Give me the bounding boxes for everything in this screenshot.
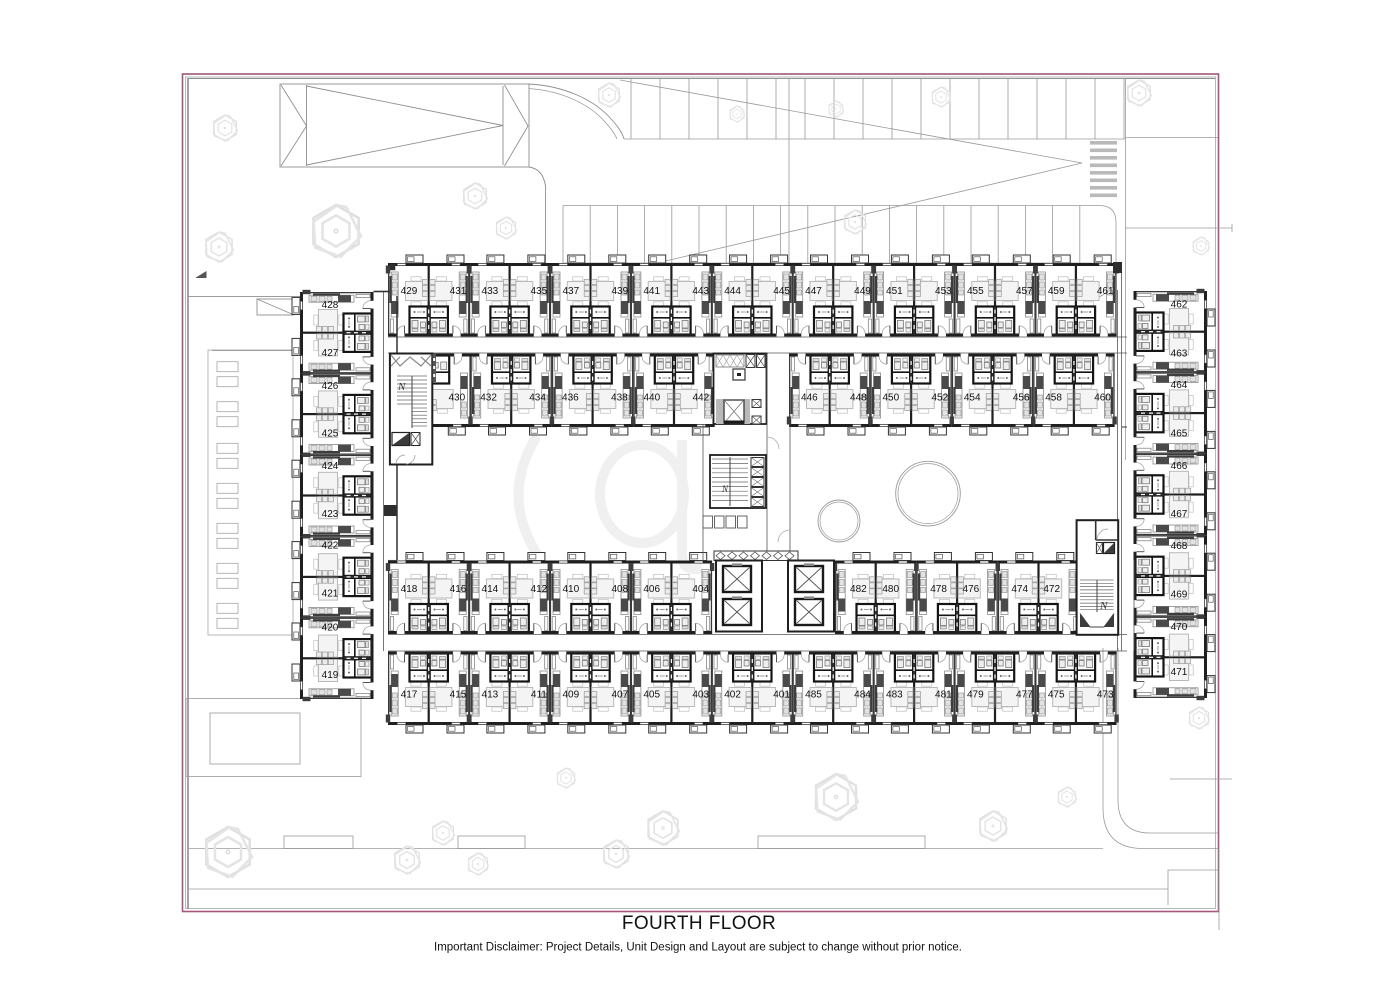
svg-text:413: 413 — [482, 690, 499, 701]
svg-text:471: 471 — [1171, 667, 1188, 678]
svg-text:443: 443 — [692, 286, 709, 297]
svg-text:439: 439 — [611, 286, 628, 297]
svg-text:422: 422 — [322, 540, 339, 551]
svg-text:470: 470 — [1171, 622, 1188, 633]
svg-text:436: 436 — [562, 392, 579, 403]
svg-text:442: 442 — [692, 392, 709, 403]
svg-text:468: 468 — [1171, 541, 1188, 552]
svg-text:446: 446 — [801, 392, 818, 403]
svg-text:455: 455 — [967, 286, 984, 297]
svg-text:425: 425 — [322, 428, 339, 439]
svg-text:465: 465 — [1171, 429, 1188, 440]
svg-text:430: 430 — [448, 392, 465, 403]
svg-text:445: 445 — [773, 286, 790, 297]
svg-text:426: 426 — [322, 381, 339, 392]
svg-text:403: 403 — [692, 690, 709, 701]
svg-text:485: 485 — [805, 690, 822, 701]
svg-text:408: 408 — [611, 584, 628, 595]
svg-text:474: 474 — [1011, 584, 1028, 595]
svg-text:464: 464 — [1171, 380, 1188, 391]
svg-text:405: 405 — [643, 690, 660, 701]
svg-text:402: 402 — [724, 690, 741, 701]
svg-text:N: N — [397, 381, 406, 393]
svg-text:444: 444 — [724, 286, 741, 297]
svg-text:418: 418 — [401, 584, 418, 595]
svg-text:410: 410 — [562, 584, 579, 595]
svg-text:434: 434 — [529, 392, 546, 403]
svg-text:482: 482 — [850, 584, 867, 595]
svg-text:432: 432 — [480, 392, 497, 403]
svg-text:467: 467 — [1171, 509, 1188, 520]
svg-text:406: 406 — [643, 584, 660, 595]
svg-text:463: 463 — [1171, 349, 1188, 360]
svg-text:449: 449 — [854, 286, 871, 297]
svg-text:411: 411 — [531, 690, 547, 701]
svg-text:412: 412 — [531, 584, 548, 595]
svg-text:Important Disclaimer: Project: Important Disclaimer: Project Details, U… — [434, 942, 962, 954]
svg-text:441: 441 — [643, 286, 660, 297]
svg-text:419: 419 — [322, 670, 339, 681]
svg-text:421: 421 — [322, 588, 339, 599]
svg-text:424: 424 — [322, 461, 339, 472]
svg-text:416: 416 — [450, 584, 467, 595]
svg-text:466: 466 — [1171, 461, 1188, 472]
svg-text:481: 481 — [935, 690, 952, 701]
svg-text:428: 428 — [322, 300, 339, 311]
svg-text:462: 462 — [1171, 300, 1188, 311]
svg-text:454: 454 — [964, 392, 981, 403]
svg-text:437: 437 — [562, 286, 579, 297]
svg-text:414: 414 — [482, 584, 499, 595]
svg-text:409: 409 — [562, 690, 579, 701]
svg-text:FOURTH FLOOR: FOURTH FLOOR — [622, 913, 776, 934]
svg-text:473: 473 — [1097, 690, 1114, 701]
svg-text:423: 423 — [322, 509, 339, 520]
svg-text:415: 415 — [450, 690, 467, 701]
svg-text:459: 459 — [1048, 286, 1065, 297]
svg-text:448: 448 — [850, 392, 867, 403]
svg-text:483: 483 — [886, 690, 903, 701]
svg-text:461: 461 — [1097, 286, 1114, 297]
svg-text:417: 417 — [401, 690, 418, 701]
svg-text:480: 480 — [882, 584, 899, 595]
svg-text:429: 429 — [401, 286, 418, 297]
svg-text:431: 431 — [450, 286, 467, 297]
svg-text:469: 469 — [1171, 590, 1188, 601]
svg-text:447: 447 — [805, 286, 822, 297]
svg-text:440: 440 — [643, 392, 660, 403]
svg-text:452: 452 — [931, 392, 948, 403]
svg-text:460: 460 — [1094, 392, 1111, 403]
svg-text:420: 420 — [322, 623, 339, 634]
svg-text:484: 484 — [854, 690, 871, 701]
svg-text:477: 477 — [1016, 690, 1033, 701]
svg-text:435: 435 — [531, 286, 548, 297]
svg-text:478: 478 — [930, 584, 947, 595]
svg-text:458: 458 — [1045, 392, 1062, 403]
svg-text:N: N — [1099, 600, 1108, 612]
svg-text:479: 479 — [967, 690, 984, 701]
svg-text:427: 427 — [322, 348, 339, 359]
svg-text:476: 476 — [963, 584, 980, 595]
svg-text:456: 456 — [1013, 392, 1030, 403]
svg-text:N: N — [721, 484, 729, 494]
svg-text:475: 475 — [1048, 690, 1065, 701]
svg-text:457: 457 — [1016, 286, 1033, 297]
svg-text:438: 438 — [611, 392, 628, 403]
svg-text:401: 401 — [773, 690, 790, 701]
svg-text:451: 451 — [886, 286, 903, 297]
svg-text:407: 407 — [611, 690, 628, 701]
svg-text:472: 472 — [1043, 584, 1060, 595]
svg-text:433: 433 — [482, 286, 499, 297]
svg-text:450: 450 — [882, 392, 899, 403]
svg-text:404: 404 — [692, 584, 709, 595]
svg-text:453: 453 — [935, 286, 952, 297]
